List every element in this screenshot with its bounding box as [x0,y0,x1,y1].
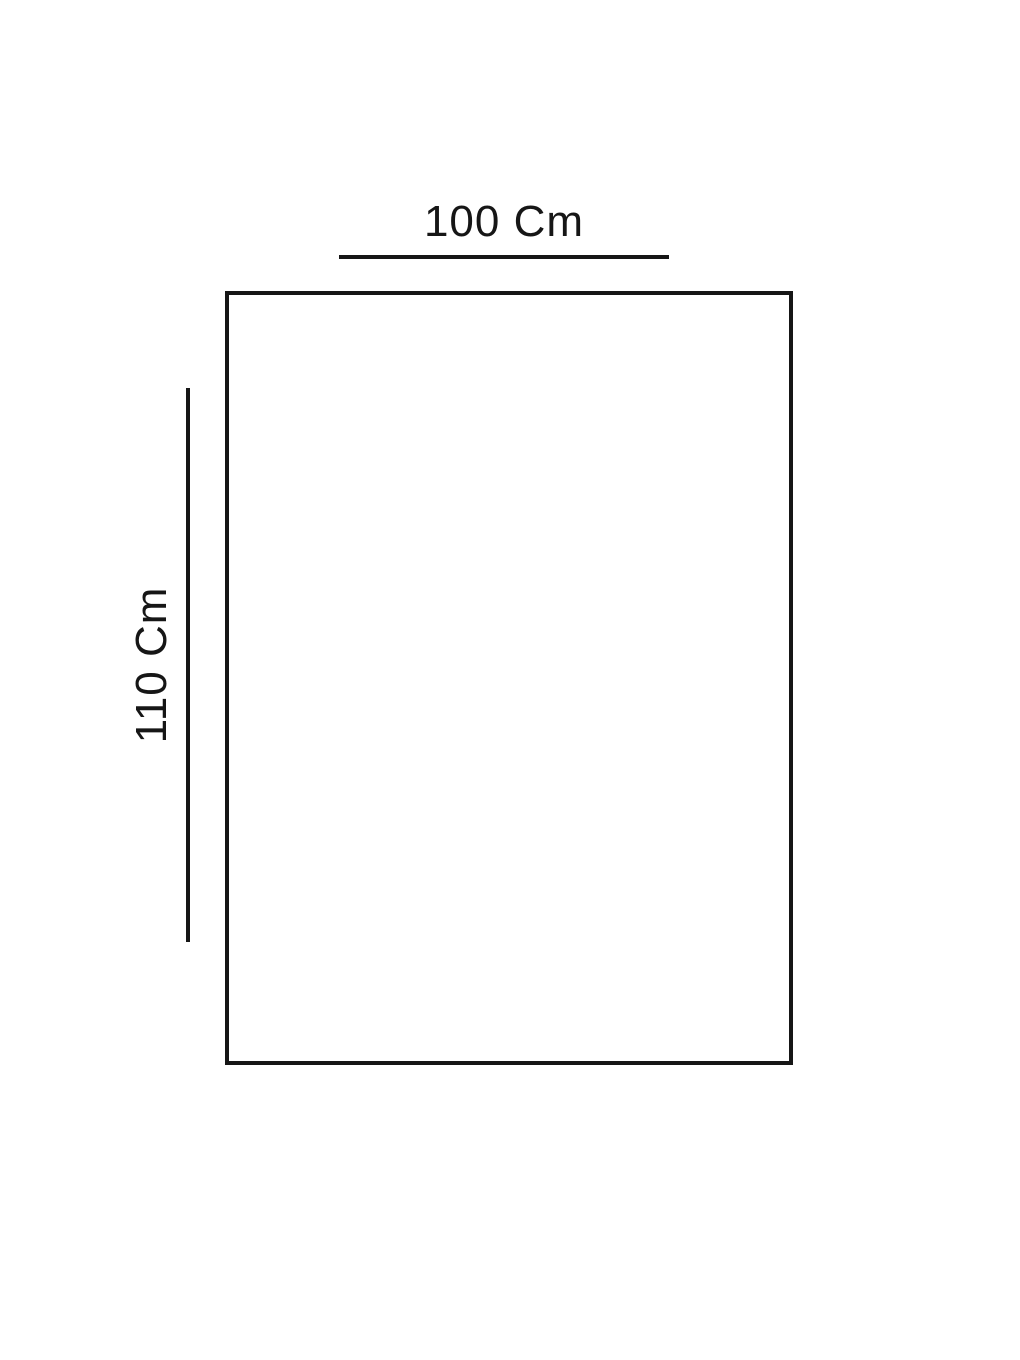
height-dimension-label: 110 Cm [126,500,178,830]
height-dimension-line [186,388,190,942]
dimension-diagram: 100 Cm 110 Cm [0,0,1020,1360]
width-dimension-line [339,255,669,259]
width-dimension-label: 100 Cm [339,196,669,248]
rectangle-shape [225,291,793,1065]
